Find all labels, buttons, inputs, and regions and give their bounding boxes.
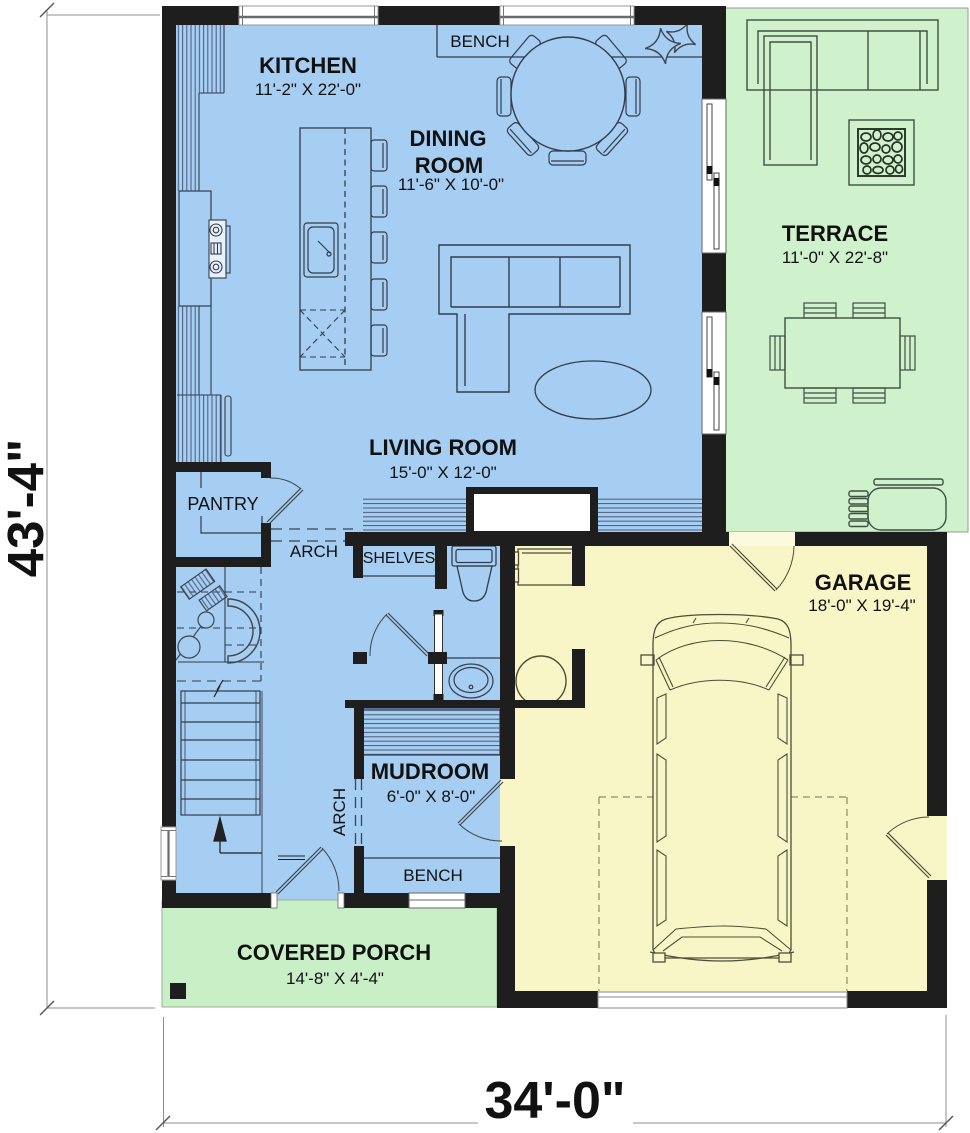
svg-text:LIVING ROOM: LIVING ROOM: [369, 435, 517, 460]
svg-text:14'-8" X 4'-4": 14'-8" X 4'-4": [286, 969, 384, 988]
svg-text:ARCH: ARCH: [330, 788, 349, 836]
svg-text:11'-2" X 22'-0": 11'-2" X 22'-0": [255, 80, 361, 99]
svg-text:TERRACE: TERRACE: [782, 221, 888, 246]
svg-text:34'-0": 34'-0": [484, 1072, 625, 1130]
svg-text:BENCH: BENCH: [403, 866, 463, 885]
svg-text:COVERED PORCH: COVERED PORCH: [237, 940, 431, 965]
svg-text:MUDROOM: MUDROOM: [371, 759, 490, 784]
svg-text:GARAGE: GARAGE: [815, 570, 912, 595]
svg-text:43'-4": 43'-4": [0, 439, 54, 577]
svg-text:18'-0" X 19'-4": 18'-0" X 19'-4": [808, 596, 915, 615]
svg-text:KITCHEN: KITCHEN: [259, 53, 357, 78]
svg-text:ARCH: ARCH: [290, 542, 338, 561]
svg-text:SHELVES: SHELVES: [363, 550, 436, 567]
svg-text:11'-6" X 10'-0": 11'-6" X 10'-0": [398, 175, 504, 194]
svg-text:11'-0" X 22'-8": 11'-0" X 22'-8": [782, 248, 888, 267]
svg-text:BENCH: BENCH: [450, 32, 510, 51]
svg-text:15'-0" X 12'-0": 15'-0" X 12'-0": [389, 463, 496, 482]
svg-text:DINING: DINING: [410, 126, 487, 151]
svg-text:PANTRY: PANTRY: [187, 494, 258, 514]
svg-text:6'-0" X 8'-0": 6'-0" X 8'-0": [387, 787, 476, 806]
